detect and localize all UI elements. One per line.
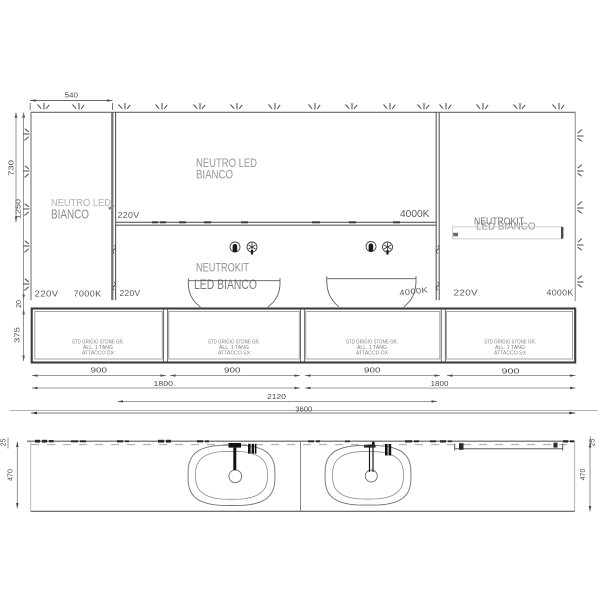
- svg-text:220V: 220V: [454, 289, 479, 298]
- svg-text:NEUTROKIT: NEUTROKIT: [196, 261, 250, 275]
- svg-text:ATTACCO DX: ATTACCO DX: [82, 351, 115, 357]
- svg-text:220V: 220V: [118, 211, 140, 220]
- svg-text:375: 375: [15, 327, 22, 343]
- svg-text:20: 20: [16, 300, 23, 308]
- svg-text:900: 900: [91, 368, 108, 375]
- svg-text:1800: 1800: [154, 381, 174, 388]
- svg-text:ATTACCO SX: ATTACCO SX: [218, 351, 251, 357]
- svg-text:730: 730: [9, 160, 16, 176]
- svg-text:540: 540: [65, 93, 79, 100]
- svg-text:220V: 220V: [35, 290, 59, 299]
- svg-text:900: 900: [224, 368, 241, 375]
- svg-text:ATTACCO SX: ATTACCO SX: [494, 351, 527, 357]
- svg-text:220V: 220V: [120, 289, 141, 298]
- svg-text:BIANCO: BIANCO: [51, 208, 89, 222]
- svg-text:7000K: 7000K: [74, 290, 102, 299]
- svg-text:4000K: 4000K: [400, 208, 430, 220]
- svg-text:1800: 1800: [431, 381, 449, 388]
- svg-text:LED BIANCO: LED BIANCO: [194, 277, 257, 292]
- svg-text:3600: 3600: [295, 406, 312, 413]
- svg-text:4000K: 4000K: [547, 289, 574, 298]
- svg-text:25: 25: [1, 439, 8, 447]
- svg-text:1250: 1250: [16, 199, 23, 219]
- svg-text:BIANCO: BIANCO: [196, 168, 233, 182]
- svg-text:470: 470: [8, 469, 15, 481]
- svg-text:900: 900: [364, 368, 381, 375]
- svg-text:ATTACCO DX: ATTACCO DX: [356, 351, 389, 357]
- svg-text:470: 470: [580, 469, 587, 481]
- svg-text:2120: 2120: [267, 394, 286, 401]
- svg-text:900: 900: [502, 369, 520, 376]
